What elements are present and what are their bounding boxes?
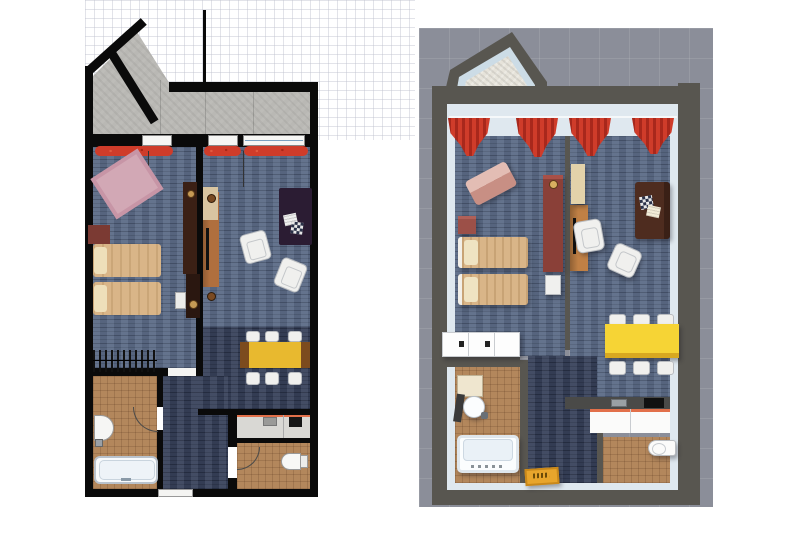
wardrobe-knob [187,190,195,198]
curtain-cord [243,151,244,187]
canvas [0,0,800,537]
wardrobe-3d [543,175,563,272]
wall-stub [203,10,206,88]
wall-bathroom-b [157,430,163,489]
kitchen-sink-3d [611,399,627,407]
cooktop [289,417,302,427]
chair-3d [609,361,626,375]
side-cabinet-3d [571,164,585,204]
hallway-floor-3d [528,356,597,483]
curtain [244,146,308,156]
chair-3d [657,361,674,375]
wall-right-3d [678,83,700,505]
wall-bathroom-right-3d [520,360,528,483]
sofa-pillow-checkered [290,221,304,235]
closet-rail [93,360,157,361]
wall-bedroom-living [196,147,203,376]
tv-screen [206,228,209,270]
wall-bottom-left [85,489,158,497]
wall-left [85,66,93,497]
bedroom-door [168,368,196,376]
cooktop-3d [644,398,664,408]
window-1 [142,135,172,146]
cabinet-row-3d [442,332,520,357]
wardrobe-knob-3d [549,180,558,189]
cabinet-seam [630,409,631,433]
entry-door [158,489,193,497]
wall-hall-wc [228,478,237,489]
hall-living-opening [196,376,228,409]
chair-3d [633,361,650,375]
toilet-tank [300,455,308,468]
2d-floor-plan [85,10,320,502]
chair [246,331,260,342]
armchair-seat-3d [580,227,600,250]
wall-bottom-right [193,489,318,497]
toilet [281,453,301,470]
dresser [88,225,110,244]
dining-table [240,342,310,368]
chair [265,372,279,385]
pillow [94,247,107,274]
right-wall-face [670,104,678,490]
wall-bathroom-top-3d [447,356,520,367]
sofa-pillow-3d [646,205,661,218]
bathtub-inner [99,460,155,480]
cabinet-seam [468,332,469,357]
chair [246,372,260,385]
side-cabinet [203,187,218,220]
wall-left-3d [432,86,447,505]
pillow [94,285,107,312]
kitchen-sink [263,417,277,426]
wall-hall-kitchen [228,415,237,447]
balcony-seam [160,80,161,134]
wall-bottom-3d [432,490,700,505]
dresser-3d [458,216,476,234]
pillow-3d [464,240,478,265]
wall-top-3d [432,86,678,104]
closet-hangers [93,350,157,372]
waste-bin-3d [481,412,488,419]
cabinet-knob [485,341,490,347]
nightstand [175,292,186,309]
left-wall-face [447,104,455,490]
wall-top-right [169,82,318,92]
wall-bathroom-a [157,376,163,407]
curtain-rod [449,116,677,118]
bathtub-faucet [121,478,131,481]
counter-seam [283,415,284,438]
nightstand-3d [545,275,561,295]
bathtub-inner-3d [463,439,513,461]
wall-right [310,82,318,497]
waste-bin [95,439,103,447]
chair [265,331,279,342]
wall-counter-wc [237,438,310,443]
chair [288,372,302,385]
3d-floor-plan [419,28,713,507]
bottom-wall-face [447,483,678,490]
dining-table-3d [605,324,679,358]
bathtub-fittings-3d [471,465,505,468]
wardrobe-knob [189,300,198,309]
speaker [207,194,216,203]
curtain [204,146,241,156]
window-2 [208,135,238,146]
speaker [207,292,216,301]
wardrobe-low [186,274,200,318]
chair [288,331,302,342]
cabinet-knob [459,341,464,347]
toilet-bowl-3d [652,443,666,455]
pillow-3d [464,277,478,302]
window-3-rail [245,140,303,141]
cabinet-seam [494,332,495,357]
